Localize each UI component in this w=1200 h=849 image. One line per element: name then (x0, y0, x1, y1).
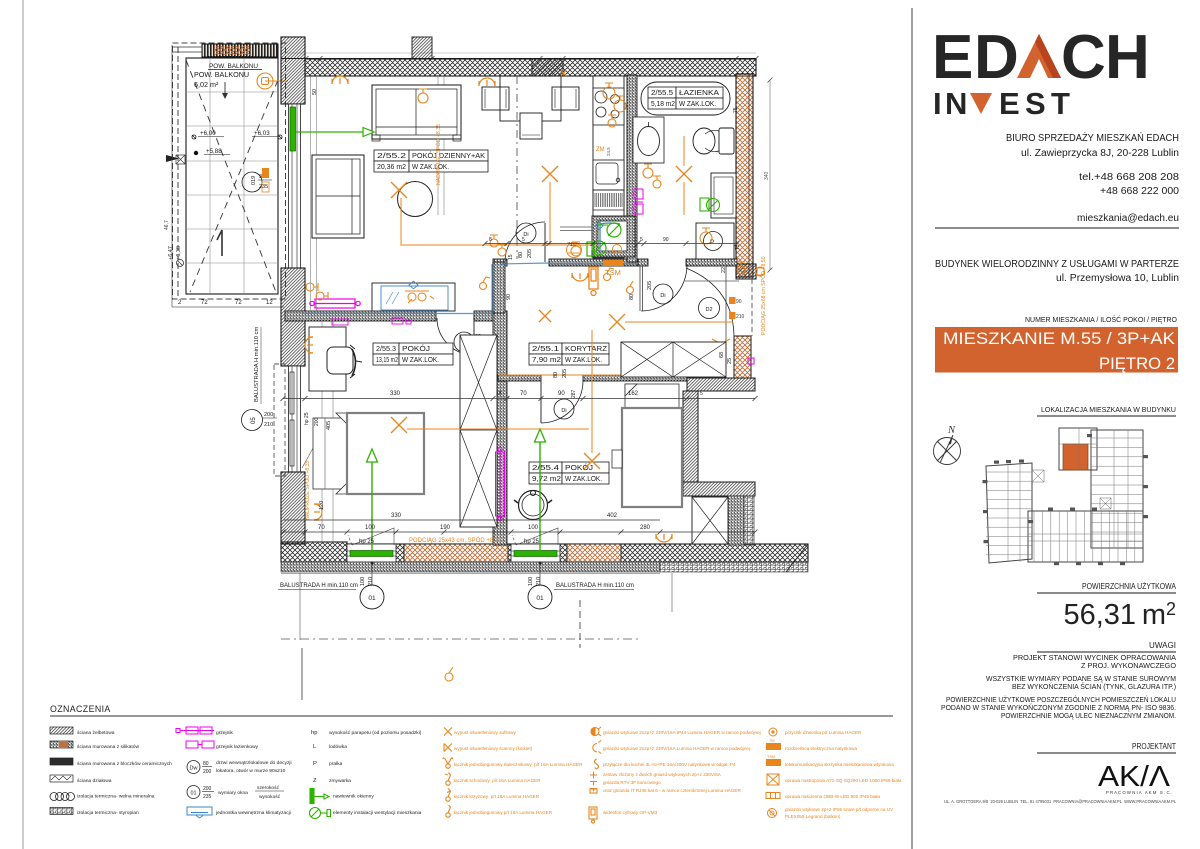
svg-text:C: C (1061, 23, 1106, 92)
svg-text:hp: hp (311, 730, 317, 736)
svg-text:90: 90 (663, 237, 669, 243)
svg-text:Dw: Dw (190, 766, 198, 772)
svg-text:ściana żelbetowa: ściana żelbetowa (77, 730, 115, 736)
svg-text:8: 8 (489, 237, 492, 243)
svg-text:KORYTARZ: KORYTARZ (565, 344, 608, 353)
svg-text:hp 25: hp 25 (359, 539, 375, 545)
svg-text:wysokość parapetu (od poziomu: wysokość parapetu (od poziomu posadzki) (329, 730, 422, 736)
svg-text:PROJEKTANT: PROJEKTANT (1132, 741, 1176, 751)
svg-text:ŁAZIENKA: ŁAZIENKA (679, 88, 719, 97)
svg-text:wideofon cyfrowy OP-VM3: wideofon cyfrowy OP-VM3 (603, 810, 658, 815)
svg-text:162: 162 (628, 391, 639, 397)
svg-text:wysokość: wysokość (259, 794, 281, 800)
svg-text:grzejnik łazienkowy: grzejnik łazienkowy (216, 744, 259, 750)
svg-text:D: D (974, 23, 1019, 92)
svg-text:TSM: TSM (767, 755, 775, 759)
svg-text:W ZAK.LOK.: W ZAK.LOK. (679, 99, 716, 108)
svg-text:100: 100 (528, 577, 534, 586)
svg-text:+6,03: +6,03 (254, 130, 270, 137)
svg-text:210: 210 (264, 422, 273, 428)
svg-text:lodówka: lodówka (329, 744, 347, 750)
svg-text:wymiary okna: wymiary okna (218, 790, 248, 796)
svg-text:019: 019 (251, 176, 257, 185)
svg-text:W ZAK.LOK.: W ZAK.LOK. (565, 355, 602, 364)
svg-text:MIESZKANIE M.55 / 3P+AK: MIESZKANIE M.55 / 3P+AK (943, 329, 1176, 348)
svg-text:mieszkania@edach.eu: mieszkania@edach.eu (1077, 213, 1179, 224)
svg-text:ściana działowa: ściana działowa (77, 778, 112, 784)
svg-text:22: 22 (721, 267, 727, 273)
svg-text:50: 50 (312, 89, 318, 95)
svg-text:210: 210 (536, 577, 542, 586)
svg-text:280: 280 (640, 525, 651, 531)
svg-text:5: 5 (640, 237, 643, 243)
svg-text:ZM: ZM (596, 147, 605, 153)
svg-text:UL. A. GROTTGERA 9/8 20-029 L: UL. A. GROTTGERA 9/8 20-029 LUBLIN TEL. … (944, 799, 1177, 804)
svg-text:2/55.3: 2/55.3 (376, 344, 396, 353)
svg-text:9,72 m2: 9,72 m2 (532, 474, 561, 483)
svg-text:205: 205 (527, 249, 533, 258)
svg-text:P: P (313, 761, 317, 767)
svg-text:+48 668 222 000: +48 668 222 000 (1100, 186, 1179, 197)
svg-text:2/55.1: 2/55.1 (532, 344, 559, 353)
svg-text:gniazda RTV 3F końcowego: gniazda RTV 3F końcowego (603, 780, 661, 785)
svg-text:120: 120 (319, 501, 325, 510)
svg-text:BUDYNEK WIELORODZINNY Z USŁUGA: BUDYNEK WIELORODZINNY Z USŁUGAMI W PARTE… (935, 259, 1179, 270)
svg-text:330: 330 (390, 391, 401, 397)
svg-text:TM: TM (769, 739, 774, 743)
svg-text:100: 100 (528, 525, 539, 531)
svg-text:80: 80 (518, 252, 524, 258)
svg-text:przyłącze dla kuchni 3L+N+PE 1: przyłącze dla kuchni 3L+N+PE 16A/400V na… (603, 762, 736, 767)
svg-text:100: 100 (365, 525, 376, 531)
svg-text:235: 235 (203, 794, 212, 800)
svg-text:70: 70 (520, 391, 527, 397)
svg-text:telekomunikacyjna skrzynka mie: telekomunikacyjna skrzynka mieszkaniowa … (785, 762, 894, 767)
svg-text:70: 70 (318, 525, 325, 531)
svg-text:68: 68 (719, 352, 725, 358)
svg-text:5: 5 (700, 391, 703, 397)
svg-text:75: 75 (733, 107, 739, 113)
svg-text:ściana murowana z bloczków cer: ściana murowana z bloczków ceramicznych (77, 761, 172, 767)
svg-text:01: 01 (536, 595, 544, 602)
svg-text:Z: Z (313, 778, 317, 784)
svg-text:szerokość: szerokość (257, 785, 280, 791)
svg-text:AK/Λ: AK/Λ (1098, 761, 1171, 793)
svg-text:80: 80 (629, 294, 635, 300)
svg-text:7,90 m2: 7,90 m2 (532, 355, 561, 364)
svg-text:340: 340 (764, 171, 770, 180)
svg-text:Di: Di (561, 408, 566, 414)
svg-text:PLEX055 Legrand (balkon): PLEX055 Legrand (balkon) (785, 814, 841, 819)
svg-text:tel.+48 668 208 208: tel.+48 668 208 208 (1079, 172, 1179, 183)
svg-text:2/55.5: 2/55.5 (651, 88, 673, 97)
svg-text:przycisk dzwonka p/t Lumina HA: przycisk dzwonka p/t Lumina HAGER (785, 730, 862, 735)
svg-text:ul. Przemysłowa 10, Lublin: ul. Przemysłowa 10, Lublin (1056, 273, 1179, 284)
svg-text:205: 205 (647, 281, 653, 290)
svg-text:6,02 m²: 6,02 m² (194, 80, 219, 89)
svg-text:402: 402 (607, 513, 618, 519)
svg-text:24,5: 24,5 (606, 147, 611, 156)
svg-text:2/55.4: 2/55.4 (532, 463, 559, 472)
svg-text:łącznik jednobiegunowy p/t 16A: łącznik jednobiegunowy p/t 16A Lumina HA… (454, 810, 553, 815)
svg-text:18: 18 (496, 391, 502, 397)
svg-text:E: E (999, 86, 1020, 121)
svg-text:330: 330 (391, 513, 402, 519)
svg-text:pralka: pralka (329, 761, 343, 767)
svg-text:56,31 m2: 56,31 m2 (1063, 599, 1176, 631)
svg-text:210: 210 (736, 314, 745, 320)
svg-text:łącznik schodowy p/t 16A Lumi: łącznik schodowy p/t 16A Lumina HAGER (454, 778, 541, 783)
svg-text:100: 100 (360, 577, 366, 586)
svg-text:elementy instalacji wentylacji: elementy instalacji wentylacji mieszkani… (333, 810, 422, 816)
svg-text:ściana murowana z silikatów: ściana murowana z silikatów (77, 744, 139, 750)
svg-text:LOKALIZACJA MIESZKANIA W BUDYN: LOKALIZACJA MIESZKANIA W BUDYNKU (1041, 407, 1176, 414)
svg-text:200: 200 (314, 417, 320, 426)
svg-text:90: 90 (558, 391, 565, 397)
svg-text:BALUSTRADA H min.110 cm: BALUSTRADA H min.110 cm (280, 583, 358, 589)
svg-text:H: H (1105, 23, 1150, 92)
svg-text:E: E (932, 23, 973, 92)
svg-text:nawiewnik okienny: nawiewnik okienny (333, 794, 374, 800)
svg-text:hp 25: hp 25 (304, 412, 310, 425)
svg-text:T: T (1051, 86, 1070, 121)
svg-text:25: 25 (727, 358, 733, 364)
svg-text:ul. Zawieprzycka 8J, 20-228 Lu: ul. Zawieprzycka 8J, 20-228 Lublin (1021, 148, 1179, 159)
svg-text:jednostka wewnętrzna klimatyza: jednostka wewnętrzna klimatyzacji (215, 810, 291, 816)
svg-text:90: 90 (736, 299, 742, 305)
svg-text:BIURO SPRZEDAŻY MIESZKAŃ EDACH: BIURO SPRZEDAŻY MIESZKAŃ EDACH (1006, 131, 1179, 144)
svg-text:W ZAK.LOK.: W ZAK.LOK. (402, 355, 439, 364)
svg-text:205: 205 (562, 369, 568, 378)
svg-text:POKÓJ: POKÓJ (402, 344, 430, 353)
svg-text:+6,47: +6,47 (168, 246, 174, 260)
svg-text:UWAGI: UWAGI (1149, 640, 1176, 650)
svg-text:90: 90 (506, 294, 512, 300)
svg-text:PODCIĄG 25x68 cm SPÓD +8,50: PODCIĄG 25x68 cm SPÓD +8,50 (760, 256, 767, 335)
svg-text:D2: D2 (705, 307, 712, 313)
svg-text:05: 05 (251, 417, 257, 424)
svg-text:gniazdo wtykowe 2x2p+z 230V/16: gniazdo wtykowe 2x2p+z 230V/16A IP44 Lum… (603, 730, 761, 735)
svg-text:S: S (1025, 86, 1046, 121)
svg-text:BALUSTRADA H min.110 cm: BALUSTRADA H min.110 cm (556, 583, 634, 589)
svg-text:20,36 m2: 20,36 m2 (377, 162, 406, 171)
svg-text:POKÓJ DZIENNY+AK: POKÓJ DZIENNY+AK (412, 151, 485, 160)
svg-text:72: 72 (235, 300, 242, 306)
svg-text:Di: Di (660, 293, 665, 299)
svg-text:200: 200 (264, 412, 273, 418)
svg-text:P R A C O W N I A A K M S: P R A C O W N I A A K M S . C . (1106, 790, 1172, 795)
svg-text:N: N (947, 425, 956, 436)
svg-text:oprawa nastropowa A71-SQ SQ290: oprawa nastropowa A71-SQ SQ290 LED 1000 … (785, 778, 902, 783)
svg-text:gniazdo wtykowe 2p+z IP55 szar: gniazdo wtykowe 2p+z IP55 szare p/t odpo… (785, 807, 894, 812)
svg-text:izolacja termiczna- styropian: izolacja termiczna- styropian (77, 810, 139, 816)
svg-text:200: 200 (203, 786, 212, 792)
svg-text:+6,00: +6,00 (200, 130, 216, 137)
svg-text:drzwi wewnątrzlokalowe do decy: drzwi wewnątrzlokalowe do decyzji (216, 760, 292, 766)
svg-text:PODCIĄG 25x43 cm, SPÓD +8,35: PODCIĄG 25x43 cm, SPÓD +8,35 (409, 537, 502, 544)
svg-text:PIĘTRO 2: PIĘTRO 2 (1099, 354, 1175, 373)
svg-text:zestaw złożony z dwóch gniazd: zestaw złożony z dwóch gniazd wtykowych … (603, 772, 722, 777)
svg-text:W ZAK.LOK.: W ZAK.LOK. (412, 162, 449, 171)
svg-text:zmywarka: zmywarka (329, 778, 351, 784)
svg-text:TSM: TSM (605, 268, 621, 277)
svg-text:200: 200 (203, 769, 212, 775)
svg-text:BEZ WYKOŃCZENIA ŚCIAN (TYNK, G: BEZ WYKOŃCZENIA ŚCIAN (TYNK, GLAZURA ITP… (1012, 682, 1176, 691)
svg-text:wypust oświetleniowy sufitowy: wypust oświetleniowy sufitowy (454, 730, 516, 735)
svg-text:01: 01 (190, 791, 196, 797)
svg-text:NADPROŻE, SPÓD +8,35: NADPROŻE, SPÓD +8,35 (435, 124, 442, 185)
svg-text:POWIERZCHNIE MOGĄ ULEC NIEZNAC: POWIERZCHNIE MOGĄ ULEC NIEZNACZNYM ZMIAN… (1001, 711, 1176, 720)
svg-text:+5,88: +5,88 (206, 148, 222, 155)
svg-text:N: N (945, 86, 967, 121)
svg-text:grzejnik: grzejnik (216, 730, 233, 736)
svg-text:POWIERZCHNIA UŻYTKOWA: POWIERZCHNIA UŻYTKOWA (1082, 581, 1176, 591)
svg-text:BALUSTRADA H min.110 cm: BALUSTRADA H min.110 cm (254, 327, 260, 402)
svg-text:rozdzielnica elektryczna natyn: rozdzielnica elektryczna natynkowa (785, 746, 857, 751)
svg-text:W ZAK.LOK.: W ZAK.LOK. (565, 474, 602, 483)
svg-text:405: 405 (326, 421, 332, 430)
svg-text:210: 210 (368, 577, 374, 586)
svg-text:12: 12 (266, 300, 273, 306)
svg-text:80: 80 (553, 372, 559, 378)
svg-text:łącznik krzyżowy p/t 16A Lumi: łącznik krzyżowy p/t 16A Lumina HAGER (454, 794, 540, 799)
svg-text:80: 80 (203, 761, 209, 767)
svg-text:72: 72 (201, 300, 208, 306)
svg-text:wypust oświetleniowy ścienny (: wypust oświetleniowy ścienny (kinkiet) (454, 746, 533, 751)
svg-text:lokatora, otwór w murze 90x210: lokatora, otwór w murze 90x210 (216, 768, 286, 774)
svg-text:izolacja termiczna- wełna mine: izolacja termiczna- wełna mineralna (77, 794, 155, 800)
svg-text:2/55.2: 2/55.2 (377, 151, 406, 160)
svg-text:POW. BALKONU: POW. BALKONU (194, 70, 249, 79)
svg-text:NUMER MIESZKANIA / ILOŚĆ POKOI: NUMER MIESZKANIA / ILOŚĆ POKOI / PIĘTRO (1025, 315, 1178, 324)
svg-text:gniazdo wtykowe 2x2p+z 230V/16: gniazdo wtykowe 2x2p+z 230V/16A Lumina H… (603, 746, 750, 751)
svg-text:5: 5 (522, 237, 525, 243)
svg-text:hp 25: hp 25 (524, 539, 540, 545)
svg-text:Z PROJ. WYKONAWCZEGO: Z PROJ. WYKONAWCZEGO (1081, 661, 1176, 670)
svg-text:46,7: 46,7 (164, 220, 170, 230)
svg-text:oprawa naścienna OBB-W LED 900: oprawa naścienna OBB-W LED 900 IP45 biał… (785, 794, 880, 799)
svg-text:oraz gniazda IT RJ45 kat.6 - w: oraz gniazda IT RJ45 kat.6 - w ramce czt… (603, 788, 741, 793)
svg-text:5,18 m2: 5,18 m2 (651, 99, 675, 108)
svg-text:OZNACZENIA: OZNACZENIA (50, 704, 111, 714)
svg-text:235: 235 (259, 184, 268, 190)
svg-text:13,15 m2: 13,15 m2 (376, 355, 398, 364)
svg-text:POW. BALKONU: POW. BALKONU (209, 63, 258, 70)
svg-text:01: 01 (368, 595, 376, 602)
svg-text:287: 287 (571, 389, 577, 398)
svg-text:NADPROŻE SPÓD +8,35: NADPROŻE SPÓD +8,35 (304, 460, 311, 520)
svg-text:I: I (933, 86, 942, 121)
svg-text:190: 190 (440, 525, 451, 531)
svg-text:łącznik jednobiegunowy świeczn: łącznik jednobiegunowy świecznikowy p/t … (454, 762, 583, 767)
svg-text:15: 15 (508, 254, 514, 260)
svg-text:+6,38: +6,38 (176, 246, 182, 260)
